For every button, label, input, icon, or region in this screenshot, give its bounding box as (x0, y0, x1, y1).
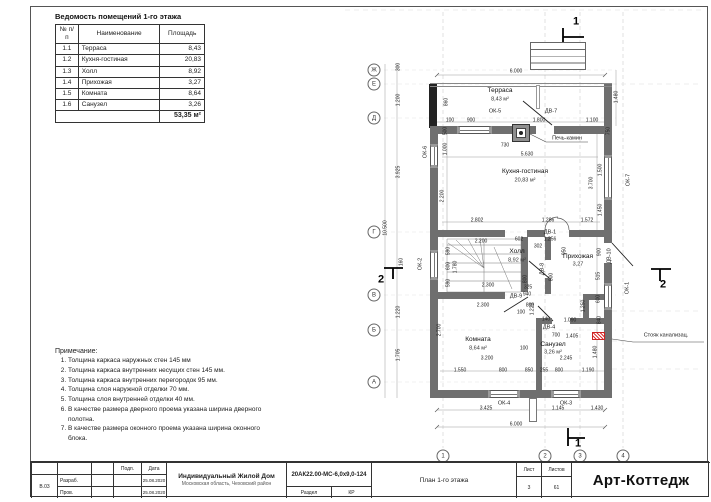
grid-axis-bubble: Е (368, 78, 381, 91)
window-ok7 (604, 155, 612, 200)
schedule-row: 1.3Холл8,92 (56, 66, 205, 77)
room-label-komnata: Комната (465, 337, 490, 344)
tb-cell (113, 486, 141, 498)
schedule-cell: Терраса (78, 44, 160, 55)
grid-axis-bubble: А (368, 376, 381, 389)
dimension-label: 300 (397, 63, 402, 71)
dimension-label: 5.630 (521, 153, 534, 158)
note-item: Толщина каркаса внутренних перегородок 9… (68, 376, 273, 386)
dimension-label: 1.780 (454, 261, 459, 274)
schedule-cell: 1.6 (56, 99, 79, 110)
grid-axis-bubble: Г (368, 226, 381, 239)
tb-cell (91, 462, 113, 474)
terrace-post (536, 85, 540, 109)
room-schedule: Ведомость помещений 1-го этажа № п/п Наи… (55, 12, 205, 123)
tb-cell (91, 474, 113, 486)
col-header-name: Наименование (78, 25, 160, 44)
dimension-label: 515 (597, 272, 602, 280)
tb-cell (91, 486, 113, 498)
dimension-label: 1.405 (566, 335, 579, 340)
schedule-cell: 8,92 (160, 66, 205, 77)
schedule-cell: Холл (78, 66, 160, 77)
tb-date-2: 25.08.2020 (141, 486, 166, 498)
dimension-label: 840 (598, 316, 603, 324)
room-area: 8,64 м² (469, 346, 487, 352)
dimension-label: 1.145 (552, 407, 565, 412)
dimension-label: 2.300 (482, 284, 495, 289)
room-label-kitchen: Кухня-гостиная (502, 169, 548, 176)
schedule-cell: 1.1 (56, 44, 79, 55)
dimension-label: 6.000 (510, 423, 523, 428)
wall (604, 84, 612, 128)
window-tag: ОК-1 (625, 282, 631, 294)
dimension-label: 1.500 (599, 164, 604, 177)
notes-block: Примечание: Толщина каркаса наружных сте… (55, 348, 273, 444)
dimension-label: 160 (400, 258, 405, 266)
room-label-hall: Холл (509, 249, 524, 256)
schedule-row: 1.2Кухня-гостиная20,83 (56, 55, 205, 66)
tb-date-header: Дата (141, 462, 166, 474)
sewer-riser-label: Стояк канализац. (644, 333, 689, 339)
grid-axis-bubble: Д (368, 112, 381, 125)
door-tag: ДВ-8 (540, 263, 546, 275)
terrace-edge (430, 83, 612, 87)
note-item: В качестве размера дверного проема указа… (68, 405, 273, 425)
entrance-steps (530, 42, 586, 70)
dimension-label: 100 (517, 311, 525, 316)
dimension-label: 140 (542, 318, 550, 323)
dimension-label: 1.090 (564, 319, 577, 324)
schedule-cell: Прихожая (78, 77, 160, 88)
tb-role-developer: Разраб. (57, 474, 91, 486)
col-header-num: № п/п (56, 25, 79, 44)
door-tag: ДВ-4 (543, 325, 555, 331)
wall (581, 390, 612, 398)
tb-date-1: 25.08.2020 (141, 474, 166, 486)
fireplace-label: Печь-камин (552, 136, 582, 142)
sewer-riser-icon (592, 332, 605, 340)
tb-sheet-label: Лист (516, 462, 541, 476)
dimension-label: 1.430 (591, 407, 604, 412)
dimension-label: 255 (540, 369, 548, 374)
schedule-cell (56, 111, 160, 123)
grid-axis-bubble: Б (368, 324, 381, 337)
dimension-label: 800 (524, 275, 529, 283)
dimension-label: 800 (555, 369, 563, 374)
room-label-sanuzel: Санузел (540, 342, 565, 349)
dimension-label: 1.000 (444, 143, 449, 156)
dimension-label: 3.925 (397, 166, 402, 179)
dimension-label: 100 (520, 347, 528, 352)
door-tag: ДВ-10 (607, 248, 613, 263)
window-tag: ОК-2 (418, 258, 424, 270)
wall (569, 230, 612, 237)
dimension-label: 730 (501, 144, 509, 149)
note-item: Толщина каркаса наружных стен 145 мм (68, 356, 273, 366)
dimension-label: 2.245 (560, 357, 573, 362)
dimension-label: 1.450 (599, 204, 604, 217)
project-location: Московская область, Чеховский район (182, 481, 271, 488)
window-ok5 (457, 126, 492, 134)
section-marker-label: 1 (575, 439, 581, 450)
wall (430, 230, 505, 237)
notes-title: Примечание: (55, 348, 273, 355)
section-marker-label: 1 (573, 17, 579, 28)
door-tag: ДВ-7 (545, 109, 557, 115)
dimension-label: 900 (467, 119, 475, 124)
dimension-label: 500 (444, 127, 449, 135)
col-header-area: Площадь (160, 25, 205, 44)
dimension-label: 800 (550, 273, 555, 281)
tb-sign-header: Подп. (113, 462, 141, 474)
window-tag: ОК-7 (626, 174, 632, 186)
dimension-label: 750 (607, 127, 612, 135)
fireplace-flue-icon (519, 131, 523, 135)
wall (520, 390, 551, 398)
schedule-cell: 1.4 (56, 77, 79, 88)
room-area: 20,83 м² (515, 178, 536, 184)
dimension-label: 590 (447, 247, 452, 255)
tb-cell (57, 462, 91, 474)
dimension-label: 1.200 (397, 94, 402, 107)
notes-list: Толщина каркаса наружных стен 145 ммТолщ… (55, 356, 273, 444)
dimension-label: 100 (446, 119, 454, 124)
tb-code: В.03 (31, 474, 57, 498)
wall (430, 168, 438, 250)
tb-section-value: КР (331, 486, 371, 498)
tb-drawing-title: План 1-го этажа (371, 462, 516, 498)
door-tag: ДВ-9 (510, 294, 522, 300)
schedule-cell: 8,43 (160, 44, 205, 55)
dimension-label: 10.500 (384, 220, 389, 235)
schedule-cell: 3,26 (160, 99, 205, 110)
dimension-label: 800 (499, 369, 507, 374)
dimension-label: 325 (524, 286, 532, 291)
grid-axis-bubble: Ж (368, 64, 381, 77)
tb-sheets-value: 61 (541, 476, 571, 498)
room-label-terrasa: Терраса (488, 88, 513, 95)
dimension-label: 1.480 (594, 346, 599, 359)
schedule-cell: 20,83 (160, 55, 205, 66)
schedule-cell: 1.2 (56, 55, 79, 66)
dimension-label: 602 (515, 238, 523, 243)
vent-duct (529, 398, 537, 422)
room-area: 8,92 м² (508, 258, 526, 264)
grid-axis-bubble: В (368, 289, 381, 302)
dimension-label: 1.705 (397, 349, 402, 362)
dimension-label: 590 (447, 279, 452, 287)
dimension-label: 3.425 (480, 407, 493, 412)
tb-sheets-label: Листов (541, 462, 571, 476)
schedule-body: 1.1Терраса8,431.2Кухня-гостиная20,831.3Х… (56, 44, 205, 123)
tb-role-checker: Пров. (57, 486, 91, 498)
schedule-title: Ведомость помещений 1-го этажа (55, 12, 205, 21)
tb-section-label: Раздел (286, 486, 331, 498)
door-tag: ДВ-1 (544, 230, 556, 236)
window-tag: ОК-6 (423, 146, 429, 158)
window-tag: ОК-5 (489, 109, 501, 115)
schedule-cell: Санузел (78, 99, 160, 110)
dimension-label: 6.000 (510, 70, 523, 75)
note-item: В качестве размера оконного проема указа… (68, 424, 273, 444)
wall (430, 280, 438, 398)
schedule-cell: Комната (78, 88, 160, 99)
dimension-label: 1.220 (397, 306, 402, 319)
tb-cell (113, 474, 141, 486)
schedule-row: 1.4Прихожая3,27 (56, 77, 205, 88)
room-area: 3,27 (573, 262, 584, 268)
wall (604, 263, 612, 283)
window-ok6 (430, 144, 438, 168)
dimension-label: 1.480 (615, 91, 620, 104)
schedule-cell: 1.3 (56, 66, 79, 77)
dimension-label: 950 (563, 247, 568, 255)
dimension-label: 940 (523, 293, 531, 298)
note-item: Толщина слоя внутренней отделки 40 мм. (68, 395, 273, 405)
dimension-label: 600 (447, 262, 452, 270)
dimension-label: 1.572 (581, 219, 594, 224)
room-area: 8,43 м² (491, 97, 509, 103)
schedule-cell: 3,27 (160, 77, 205, 88)
wall (429, 84, 437, 128)
window-ok1 (604, 283, 612, 310)
schedule-row: 1.5Комната8,64 (56, 88, 205, 99)
dimension-label: 860 (445, 98, 450, 106)
window-ok3 (551, 390, 581, 398)
title-block: В.03 Разраб. Пров. Подп. Дата 25.08.2020… (30, 461, 709, 497)
section-marker-label: 2 (660, 280, 666, 291)
wall (536, 318, 542, 398)
dimension-label: 2.200 (475, 240, 488, 245)
dimension-label: 900 (598, 248, 603, 256)
schedule-cell: 1.5 (56, 88, 79, 99)
schedule-cell: 8,64 (160, 88, 205, 99)
tb-project: Индивидуальный Жилой Дом Московская обла… (166, 462, 286, 498)
dimension-label: 1.220 (531, 303, 536, 316)
tb-doc-number: 20АК22.00-МС-6,0х9,0-124 (286, 462, 371, 486)
dimension-label: 1.286 (542, 219, 555, 224)
note-item: Толщина слоя наружной отделки 70 мм. (68, 385, 273, 395)
dimension-label: 1.100 (586, 119, 599, 124)
dimension-label: 1.800 (533, 119, 546, 124)
dimension-label: 3.700 (590, 177, 595, 190)
schedule-cell: Кухня-гостиная (78, 55, 160, 66)
dimension-label: 1.256 (544, 238, 557, 243)
schedule-row: 1.6Санузел3,26 (56, 99, 205, 110)
window-ok4 (488, 390, 520, 398)
tb-cell (31, 462, 57, 474)
wall (527, 230, 545, 237)
window-tag: ОК-4 (498, 401, 510, 407)
dimension-label: 3.200 (481, 357, 494, 362)
window-ok2 (430, 250, 438, 280)
schedule-total-value: 53,35 м² (160, 111, 205, 123)
dimension-label: 2.802 (471, 219, 484, 224)
dimension-label: 2.700 (438, 324, 443, 337)
tb-sheet-value: 3 (516, 476, 541, 498)
wall (438, 292, 505, 299)
tb-brand-logo: Арт-Коттедж (571, 462, 710, 498)
drawing-sheet: Ведомость помещений 1-го этажа № п/п Наи… (0, 0, 711, 502)
note-item: Толщина каркаса внутренних несущих стен … (68, 366, 273, 376)
dimension-label: 2.200 (441, 190, 446, 203)
dimension-label: 1.550 (454, 369, 467, 374)
dimension-label: 302 (534, 245, 542, 250)
dimension-label: 850 (525, 369, 533, 374)
schedule-total-row: 53,35 м² (56, 111, 205, 123)
dimension-label: 2.300 (477, 304, 490, 309)
dimension-label: 700 (552, 334, 560, 339)
dimension-label: 600 (597, 295, 602, 303)
dimension-label: 1.190 (582, 369, 595, 374)
dimension-label: 1.250 (582, 300, 587, 313)
schedule-row: 1.1Терраса8,43 (56, 44, 205, 55)
wall (554, 126, 612, 134)
section-marker-label: 2 (378, 275, 384, 286)
wall (430, 390, 488, 398)
schedule-table: № п/п Наименование Площадь 1.1Терраса8,4… (55, 24, 205, 123)
